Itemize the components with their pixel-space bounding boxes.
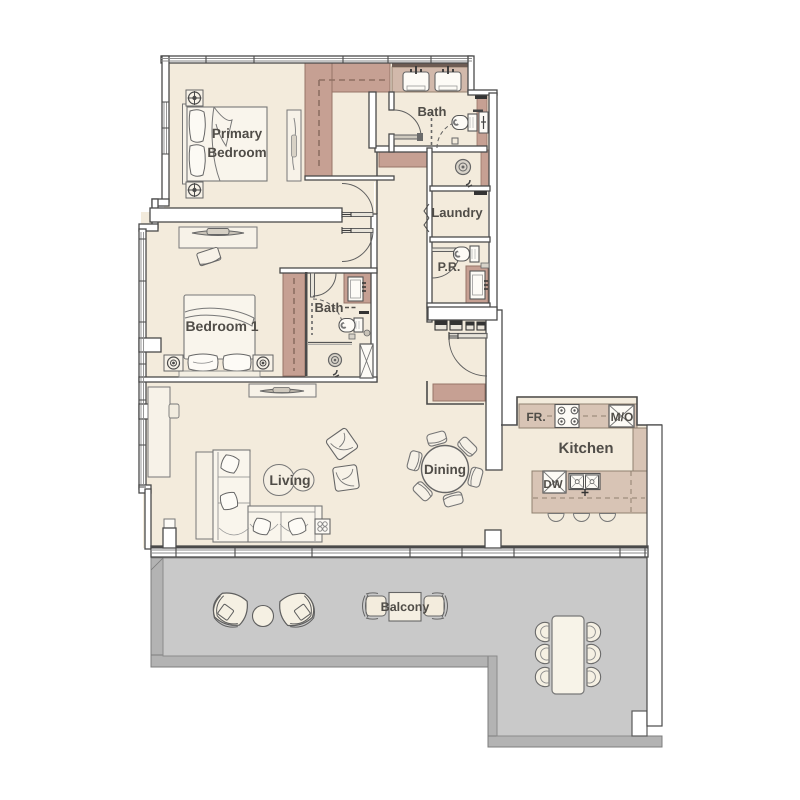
svg-text:Dining: Dining	[424, 462, 466, 477]
svg-text:Balcony: Balcony	[381, 600, 430, 614]
svg-text:Bath: Bath	[315, 300, 344, 315]
svg-text:Living: Living	[269, 472, 310, 488]
svg-text:Bedroom 1: Bedroom 1	[185, 318, 258, 334]
svg-text:DW: DW	[543, 479, 562, 491]
svg-text:Laundry: Laundry	[431, 205, 483, 220]
svg-text:FR.: FR.	[526, 410, 545, 424]
svg-text:Primary: Primary	[212, 126, 263, 141]
svg-text:Kitchen: Kitchen	[558, 440, 613, 457]
svg-text:Bedroom: Bedroom	[207, 145, 266, 160]
svg-text:M/O: M/O	[611, 410, 634, 424]
svg-text:Bath: Bath	[418, 104, 447, 119]
svg-text:P.R.: P.R.	[438, 260, 461, 274]
